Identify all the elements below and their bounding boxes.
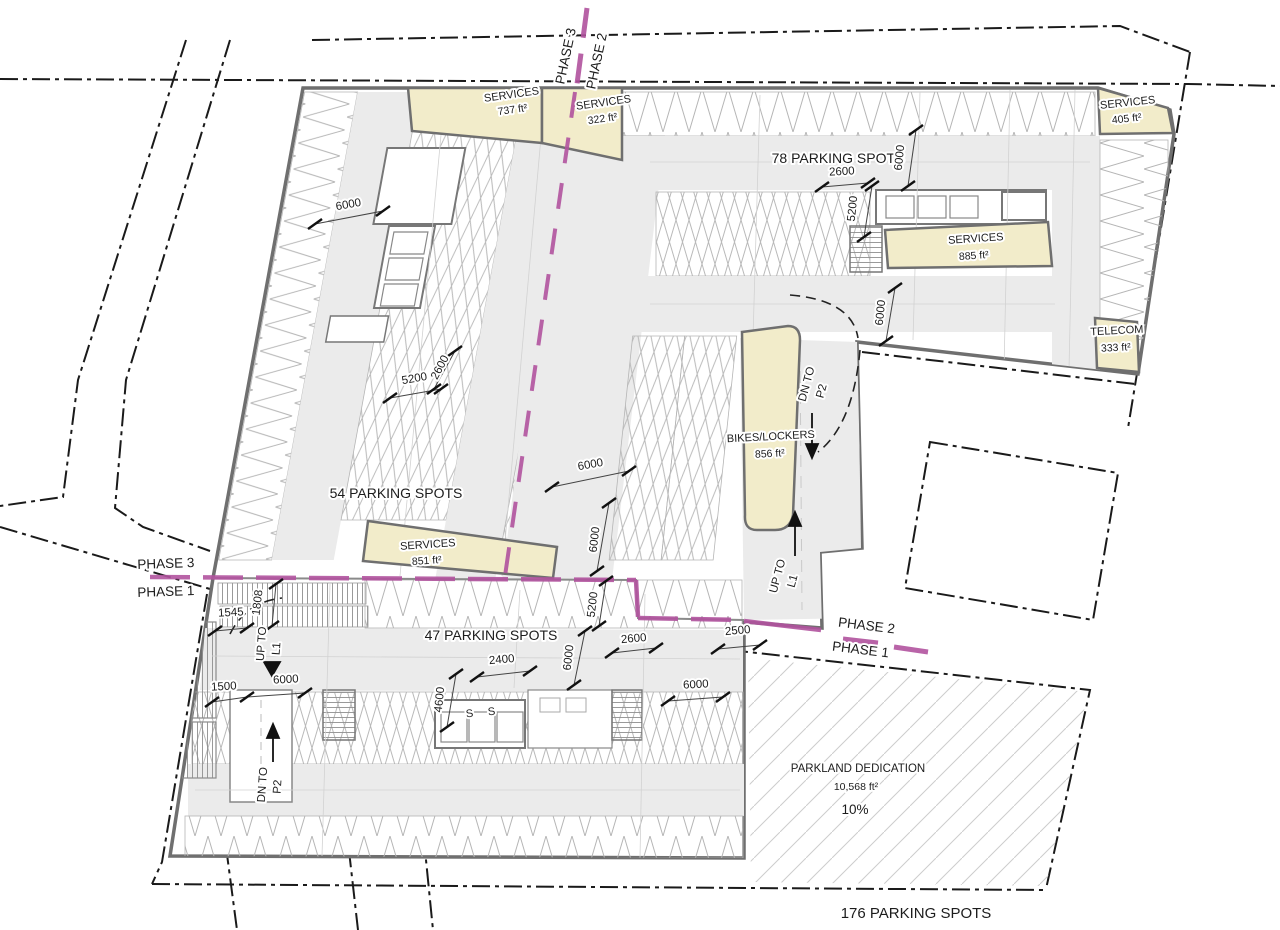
- ramp-label-up-l1: UP TO: [255, 626, 269, 661]
- dim-label: 6000: [683, 678, 709, 691]
- phase-label-left-3: PHASE 3: [137, 555, 195, 572]
- ramp-label-up-l1: L1: [271, 642, 284, 656]
- phase-label-right-2: PHASE 2: [837, 615, 895, 637]
- parking-count-total: 176 PARKING SPOTS: [841, 905, 992, 922]
- dim-label: 1500: [211, 680, 237, 693]
- room-area: 885 ft²: [959, 249, 990, 263]
- parkland-area: 10,568 ft²: [834, 781, 879, 793]
- room-area: 333 ft²: [1101, 341, 1132, 355]
- parking-level-plan: PHASE 3 PHASE 2 PHASE 3 PHASE 1 PHASE 2 …: [0, 0, 1280, 930]
- ramp-label-dn-p2: DN TO: [256, 767, 270, 803]
- room-area: 856 ft²: [755, 447, 786, 461]
- room-area: 851 ft²: [412, 554, 443, 568]
- ramp-label-dn-p2: P2: [272, 779, 285, 794]
- room-bikes-lockers: [742, 326, 800, 530]
- phase-label-right-1: PHASE 1: [831, 639, 889, 661]
- room-services-405: [1098, 88, 1173, 134]
- phase-label-left-1: PHASE 1: [137, 583, 195, 600]
- parking-count-54: 54 PARKING SPOTS: [330, 485, 463, 501]
- dim-label: 2500: [724, 624, 751, 638]
- phase-label-top-3: PHASE 3: [552, 27, 579, 86]
- parking-count-47: 47 PARKING SPOTS: [425, 627, 558, 643]
- floor-plan-canvas: PHASE 3 PHASE 2 PHASE 3 PHASE 1 PHASE 2 …: [0, 0, 1280, 930]
- dim-label: 2600: [829, 165, 855, 178]
- dim-label: 6000: [273, 673, 299, 686]
- parkland-title: PARKLAND DEDICATION: [791, 763, 925, 775]
- dim-label: 2400: [488, 653, 515, 667]
- dim-label: 1545: [218, 606, 244, 619]
- parking-block-lower: [172, 580, 744, 858]
- parkland-percent: 10%: [841, 802, 868, 817]
- phase-label-top-2: PHASE 2: [583, 32, 610, 91]
- dim-label: 2600: [620, 632, 647, 646]
- parking-count-78: 78 PARKING SPOTS: [772, 150, 905, 166]
